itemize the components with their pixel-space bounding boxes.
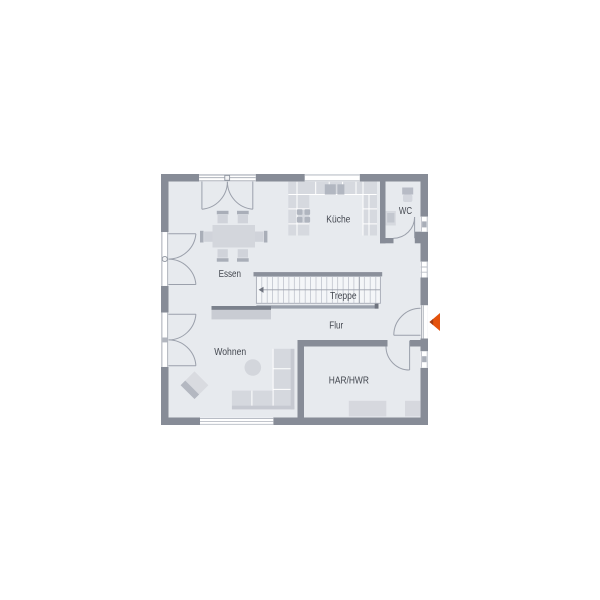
svg-text:Flur: Flur <box>329 319 343 330</box>
svg-text:Treppe: Treppe <box>330 290 357 302</box>
svg-text:Essen: Essen <box>219 268 241 279</box>
svg-text:Küche: Küche <box>326 214 350 226</box>
svg-text:Wohnen: Wohnen <box>214 346 246 358</box>
svg-text:HAR/HWR: HAR/HWR <box>329 374 369 386</box>
svg-text:WC: WC <box>399 205 412 216</box>
